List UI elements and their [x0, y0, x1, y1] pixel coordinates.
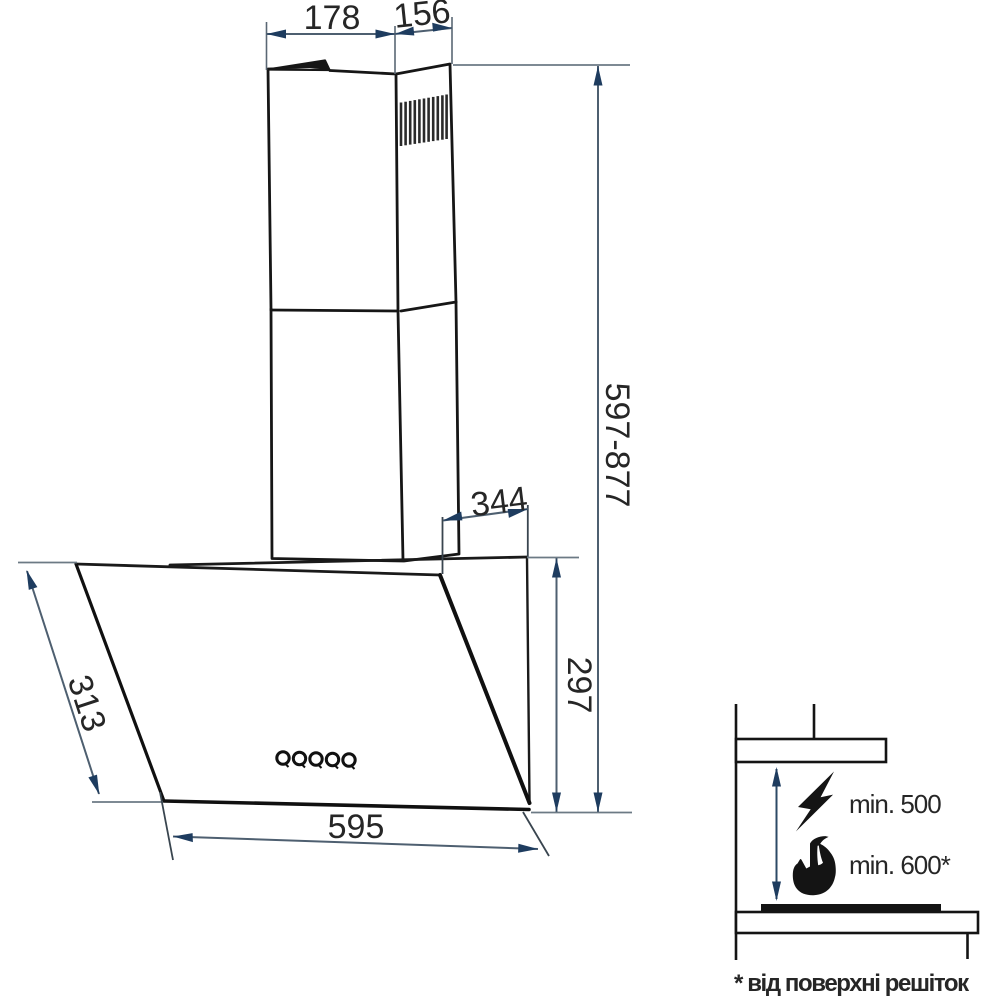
- svg-text:344: 344: [469, 480, 530, 525]
- svg-text:597-877: 597-877: [598, 383, 636, 508]
- svg-text:min. 600*: min. 600*: [849, 850, 951, 880]
- svg-text:178: 178: [304, 0, 361, 37]
- svg-text:* від поверхні решіток: * від поверхні решіток: [734, 970, 970, 997]
- svg-text:297: 297: [560, 657, 598, 714]
- svg-text:min. 500: min. 500: [849, 789, 941, 819]
- svg-text:595: 595: [328, 808, 385, 846]
- svg-text:156: 156: [392, 0, 452, 36]
